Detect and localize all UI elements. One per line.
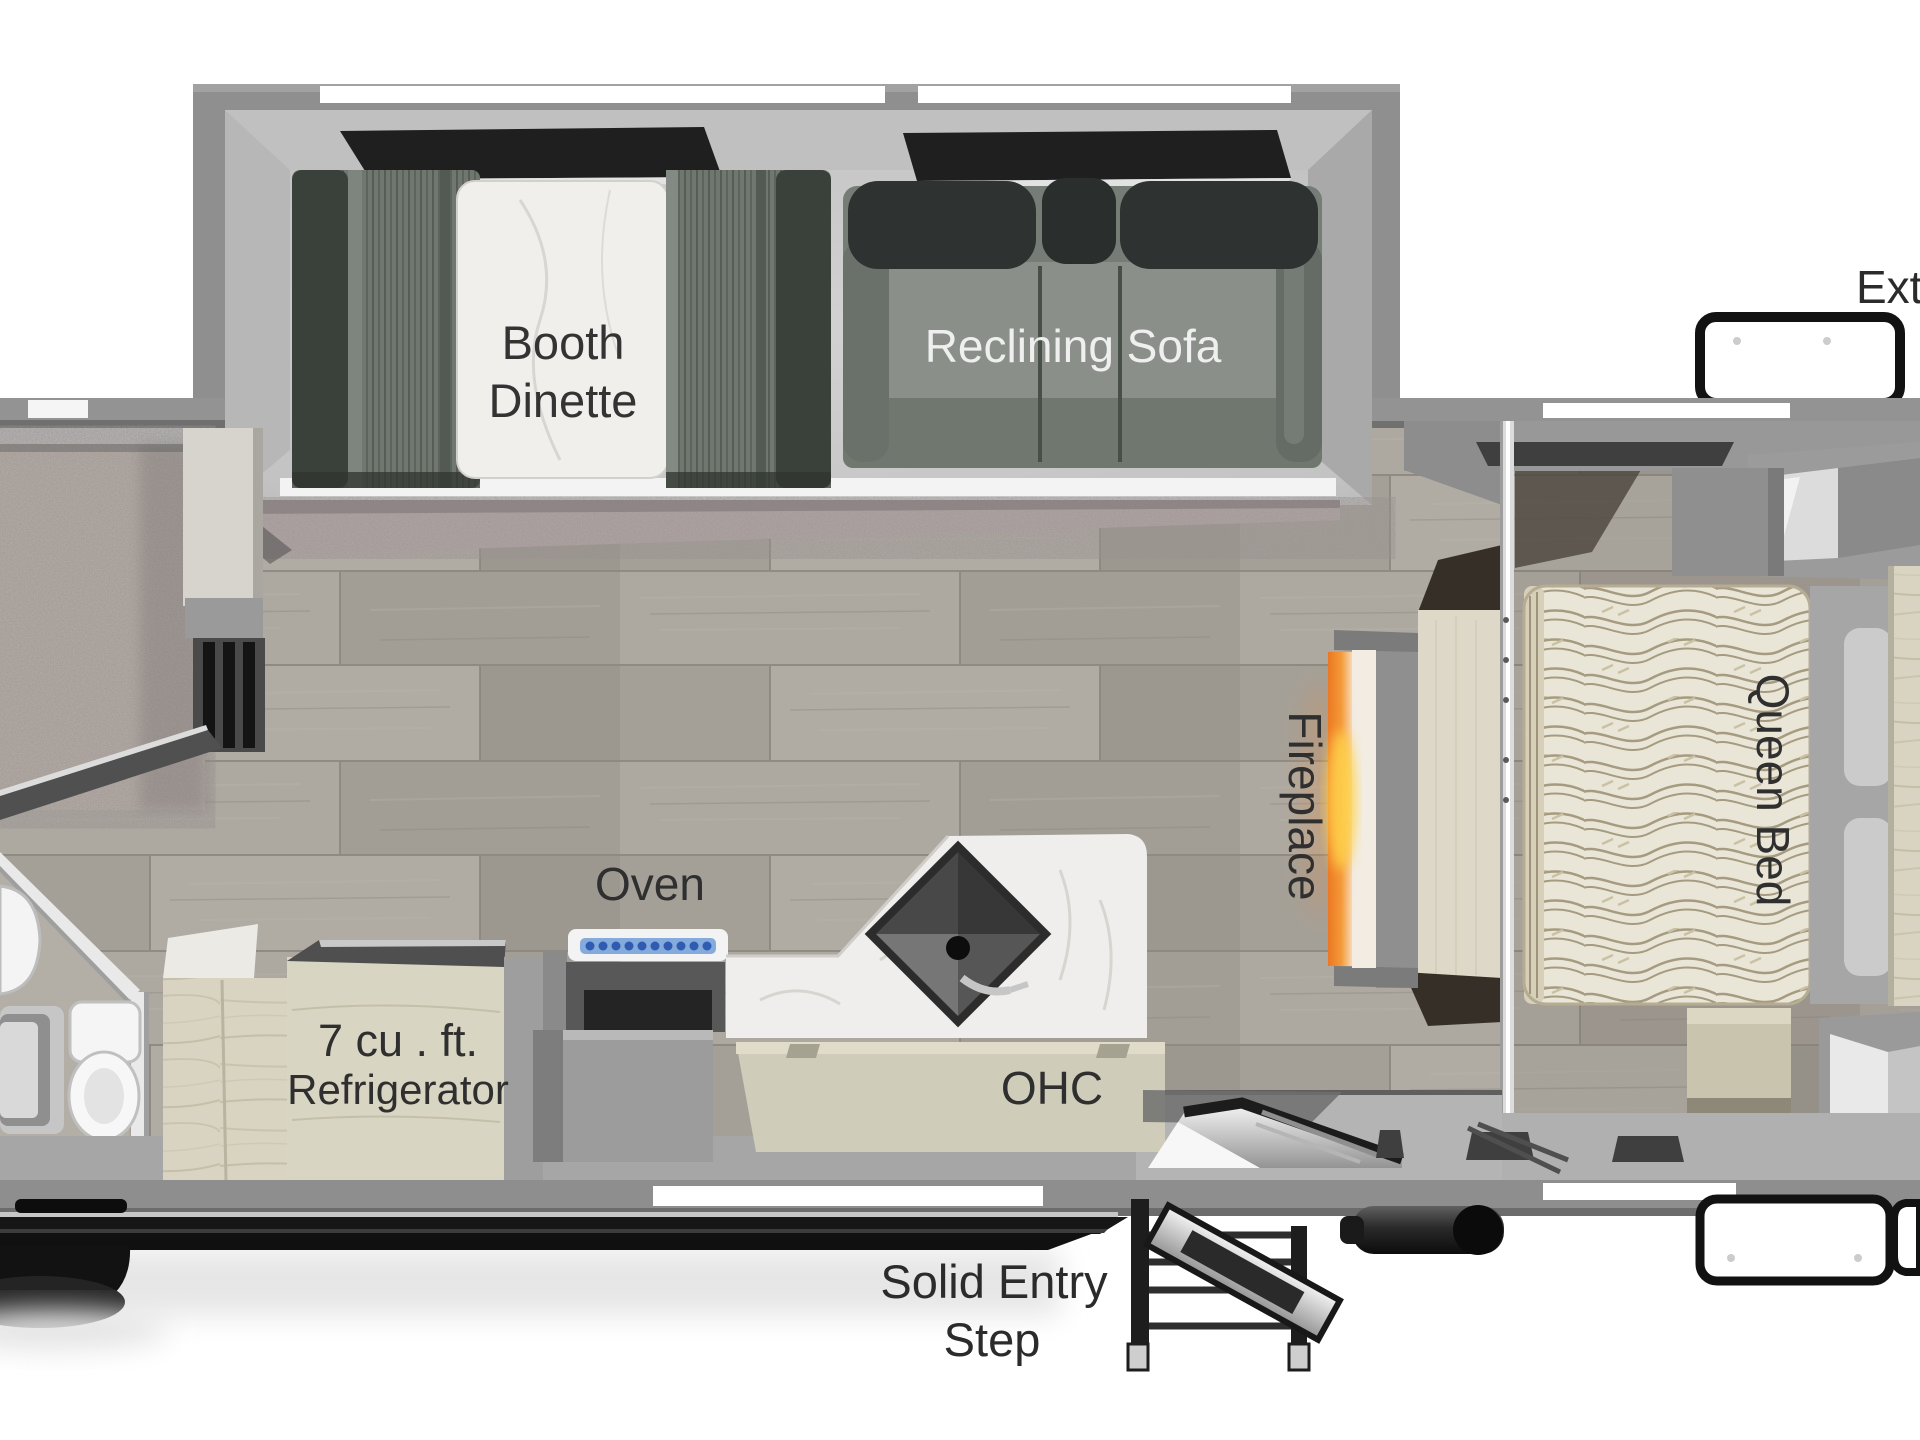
svg-text:7 cu . ft.: 7 cu . ft. — [318, 1015, 478, 1066]
svg-text:Solid Entry: Solid Entry — [880, 1255, 1108, 1308]
svg-text:OHC: OHC — [1001, 1062, 1103, 1114]
svg-text:Reclining Sofa: Reclining Sofa — [925, 320, 1222, 372]
svg-text:Refrigerator: Refrigerator — [287, 1066, 509, 1113]
svg-text:Step: Step — [944, 1313, 1041, 1366]
svg-text:Booth: Booth — [502, 316, 625, 369]
svg-text:Fireplace: Fireplace — [1279, 711, 1331, 900]
svg-text:Queen Bed: Queen Bed — [1747, 674, 1799, 907]
svg-text:Dinette: Dinette — [489, 374, 638, 427]
svg-text:Exte: Exte — [1856, 261, 1920, 313]
svg-text:Oven: Oven — [595, 858, 705, 910]
